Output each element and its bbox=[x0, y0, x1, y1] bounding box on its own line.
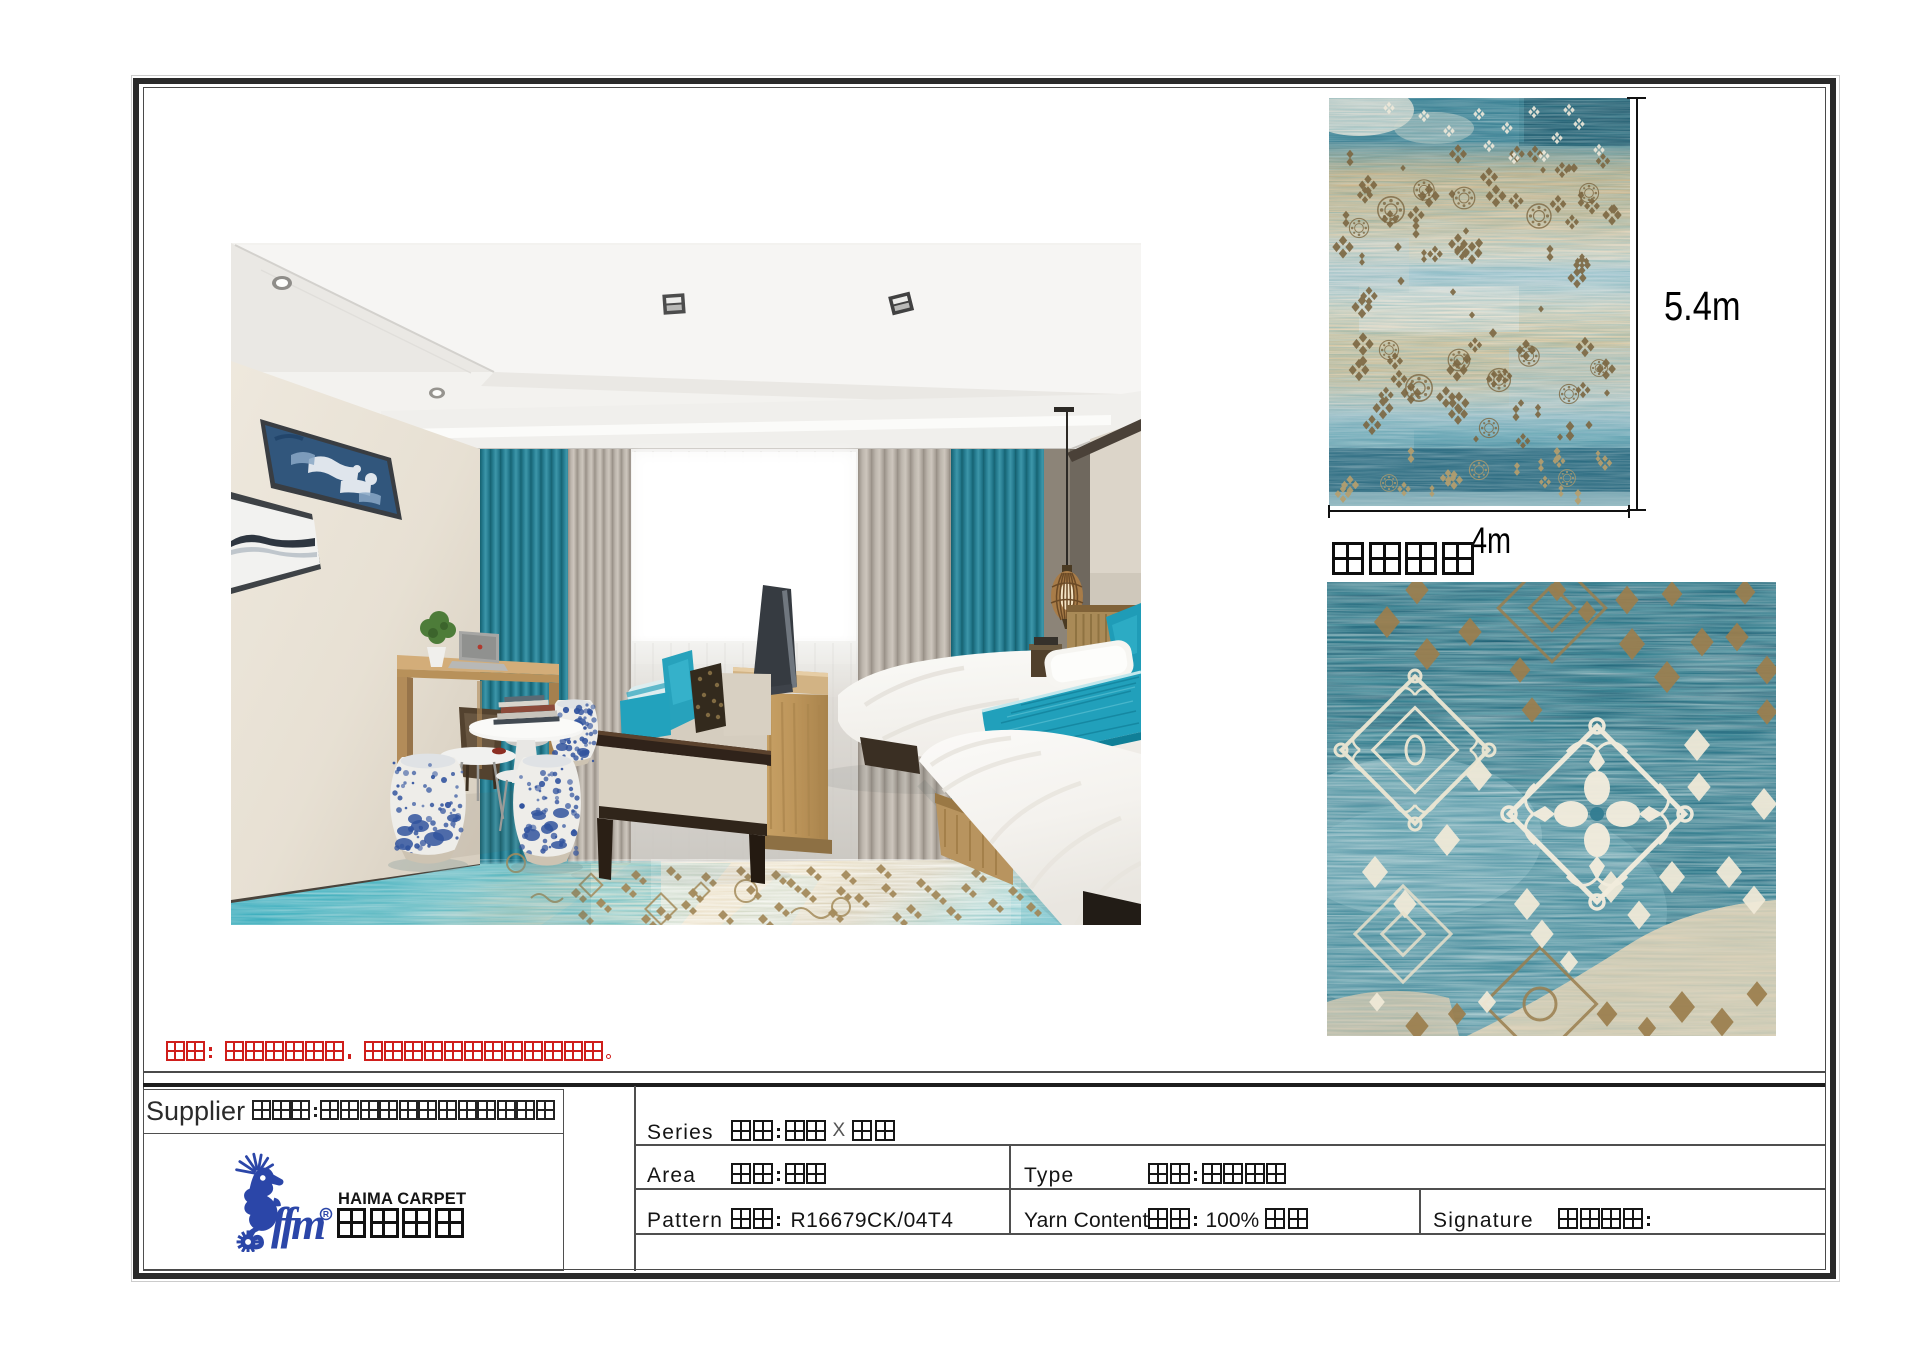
svg-text:HAIMA CARPET: HAIMA CARPET bbox=[338, 1190, 466, 1208]
svg-text:ffm: ffm bbox=[271, 1199, 324, 1249]
svg-text:R: R bbox=[323, 1209, 329, 1219]
